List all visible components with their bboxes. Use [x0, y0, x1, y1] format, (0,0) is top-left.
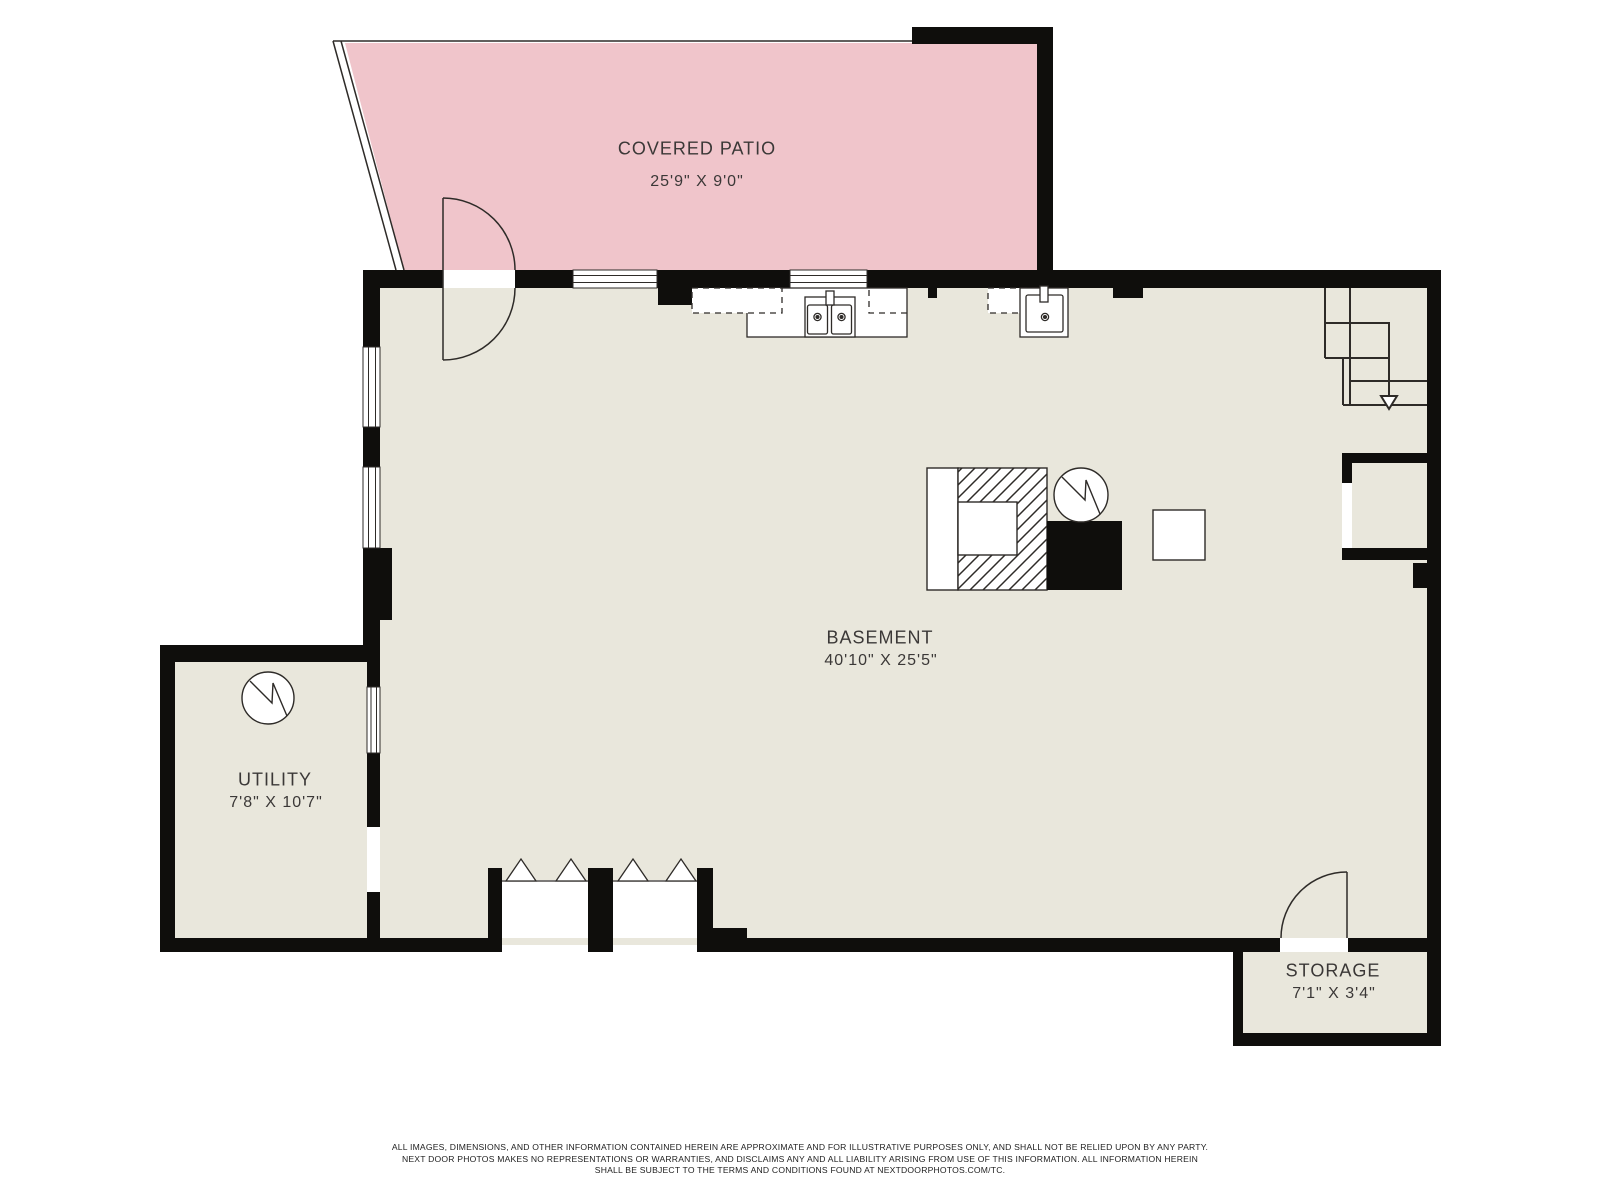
water-heater-icon [1054, 468, 1108, 522]
utility-label: UTILITY [238, 770, 312, 791]
room-name: COVERED PATIO [618, 139, 776, 160]
utility-basement-wall [367, 620, 380, 952]
equipment-white-box [927, 468, 958, 590]
faucet-icon [826, 291, 834, 305]
room-dimensions: 25'9" X 9'0" [650, 173, 744, 191]
covered-patio-label: COVERED PATIO [618, 139, 776, 160]
utility-dims: 7'8" X 10'7" [229, 794, 323, 812]
window-well-divider [588, 868, 613, 952]
furnace-inset-box [958, 502, 1017, 555]
double-sink-icon [805, 291, 855, 337]
patio-top-wall [912, 27, 1053, 44]
water-heater-icon-utility [242, 672, 294, 724]
wall-tab-right [1113, 288, 1143, 298]
storage-dims: 7'1" X 3'4" [1292, 985, 1376, 1003]
storage-left-wall [1233, 938, 1243, 1046]
storage-label: STORAGE [1286, 961, 1381, 982]
utility-left-wall [160, 645, 175, 952]
disclaimer-line-1: ALL IMAGES, DIMENSIONS, AND OTHER INFORM… [0, 1142, 1600, 1154]
patio-right-wall [1037, 27, 1053, 271]
disclaimer-line-3: SHALL BE SUBJECT TO THE TERMS AND CONDIT… [0, 1165, 1600, 1177]
window-top-1 [573, 270, 657, 288]
niche-bottom-wall [1342, 548, 1428, 560]
room-dimensions: 7'1" X 3'4" [1292, 985, 1376, 1003]
patio-door-opening [443, 270, 515, 288]
floor-plan-svg [0, 0, 1600, 1200]
storage-door-opening [1280, 938, 1348, 952]
room-dimensions: 40'10" X 25'5" [824, 652, 937, 670]
window-left-2 [363, 467, 380, 548]
basement-label: BASEMENT [826, 628, 933, 649]
room-name: BASEMENT [826, 628, 933, 649]
utility-top-wall [160, 645, 380, 662]
chimney-block [363, 548, 392, 620]
window-utility [367, 687, 380, 753]
basement-right-wall [1427, 270, 1441, 1046]
counter-dashed-left [692, 288, 782, 313]
room-name: STORAGE [1286, 961, 1381, 982]
room-dimensions: 7'8" X 10'7" [229, 794, 323, 812]
basement-dims: 40'10" X 25'5" [824, 652, 937, 670]
equipment-black-box [1047, 521, 1122, 590]
single-sink-icon [1020, 286, 1068, 337]
equipment-square [1153, 510, 1205, 560]
faucet-icon [1040, 286, 1048, 302]
niche-opening [1342, 483, 1352, 548]
niche-top-wall [1342, 453, 1428, 463]
wall-tab-mid [928, 288, 937, 298]
wall-tab-left-of-counter [658, 288, 697, 305]
utility-door-opening [367, 827, 380, 892]
window-left-1 [363, 347, 380, 427]
covered-patio-dims: 25'9" X 9'0" [650, 173, 744, 191]
floor-plan-page: COVERED PATIO 25'9" X 9'0" BASEMENT 40'1… [0, 0, 1600, 1200]
storage-bottom-wall [1233, 1033, 1441, 1046]
floor-fills [168, 43, 1434, 1040]
window-top-2 [790, 270, 867, 288]
right-wall-pier [1413, 563, 1441, 588]
disclaimer-line-2: NEXT DOOR PHOTOS MAKES NO REPRESENTATION… [0, 1154, 1600, 1166]
window-well-pillar-2 [697, 868, 713, 952]
disclaimer: ALL IMAGES, DIMENSIONS, AND OTHER INFORM… [0, 1142, 1600, 1177]
bottom-wall-left [160, 938, 502, 952]
window-well-pillar-1 [488, 868, 502, 952]
room-name: UTILITY [238, 770, 312, 791]
basement-top-wall [363, 270, 1441, 288]
bottom-wall-step [713, 928, 747, 952]
basement-floor [371, 278, 1434, 945]
